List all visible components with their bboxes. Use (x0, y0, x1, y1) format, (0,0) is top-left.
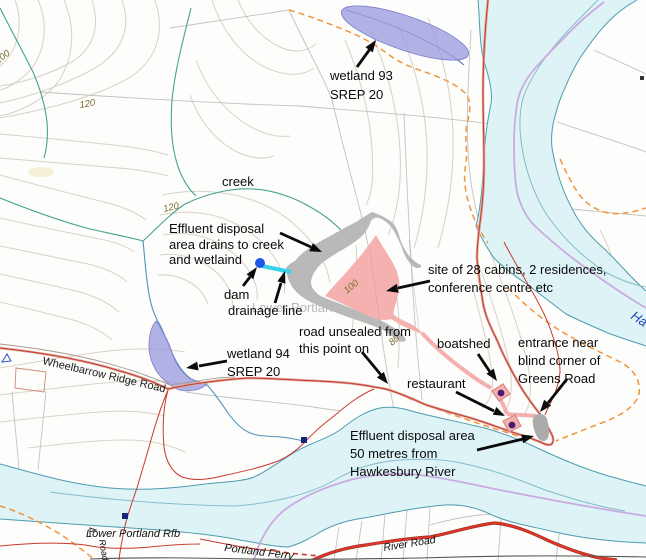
svg-text:restaurant: restaurant (407, 376, 466, 391)
svg-text:Hawkesbury River: Hawkesbury River (350, 464, 456, 479)
svg-text:road unsealed from: road unsealed from (299, 324, 411, 339)
svg-text:creek: creek (222, 174, 254, 189)
svg-text:Effluent disposal: Effluent disposal (169, 221, 264, 236)
svg-text:wetland 94: wetland 94 (226, 346, 290, 361)
svg-text:area drains to creek: area drains to creek (169, 237, 284, 252)
svg-text:entrance near: entrance near (518, 335, 599, 350)
svg-text:Effluent disposal area: Effluent disposal area (350, 428, 476, 443)
svg-text:and wetlaind: and wetlaind (169, 252, 242, 267)
svg-text:50 metres from: 50 metres from (350, 446, 437, 461)
svg-text:blind corner of: blind corner of (518, 353, 601, 368)
svg-text:drainage line: drainage line (228, 303, 302, 318)
svg-text:this point on: this point on (299, 341, 369, 356)
svg-text:boatshed: boatshed (437, 336, 491, 351)
svg-text:wetland 93: wetland 93 (329, 68, 393, 83)
svg-text:site of 28 cabins, 2 residence: site of 28 cabins, 2 residences, (428, 262, 607, 277)
svg-text:SREP 20: SREP 20 (227, 364, 280, 379)
svg-text:conference centre etc: conference centre etc (428, 280, 554, 295)
svg-text:Greens Road: Greens Road (518, 371, 595, 386)
svg-text:dam: dam (224, 287, 249, 302)
svg-text:Lower Portland Rfb: Lower Portland Rfb (86, 528, 180, 540)
svg-text:SREP 20: SREP 20 (330, 87, 383, 102)
